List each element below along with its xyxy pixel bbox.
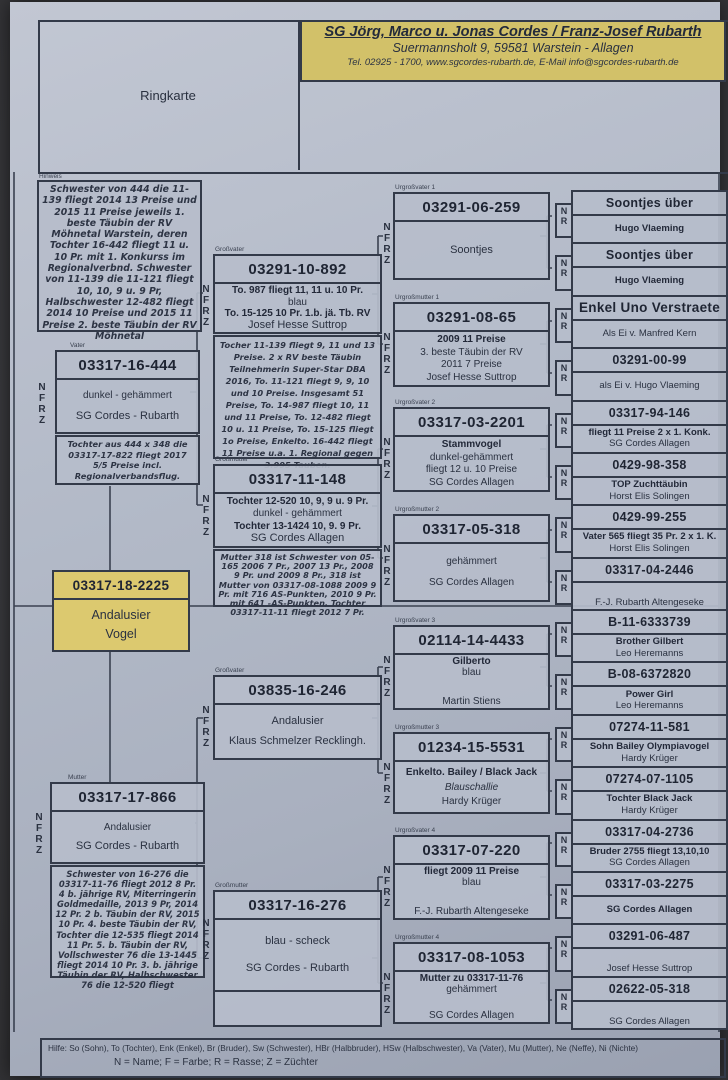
ggp6-label: Urgroßmutter 3	[395, 724, 439, 731]
nr-letters: N R	[555, 884, 571, 919]
ggp5-nfrz-letters: N F R Z	[381, 655, 393, 706]
ggg-entry-4: N R 03291-00-99 als Ei v. Hugo Vlaeming	[555, 347, 728, 399]
ggg-title: Enkel Uno Verstraete	[573, 297, 726, 321]
ggg-row: Hugo Vlaeming	[615, 224, 684, 235]
detail-row: SG Cordes - Rubarth	[246, 963, 349, 974]
vater-nfrz-letters: N F R Z	[36, 382, 48, 432]
grandfather1-note: Tocher 11-139 fliegt 9, 11 und 13 Preise…	[213, 335, 382, 459]
ggp5-ring-number: 02114-14-4433	[395, 627, 548, 655]
ggg-row: Brother Gilbert	[616, 637, 684, 648]
detail-row: Martin Stiens	[442, 696, 500, 707]
ggg-entry-13: N R 03317-04-2736 Bruder 2755 fliegt 13,…	[555, 819, 728, 871]
mutter-box: 03317-17-866 Andalusier SG Cordes - Ruba…	[50, 782, 205, 864]
ggg-title: 03317-03-2275	[573, 873, 726, 897]
ggp2-ring-number: 03291-08-65	[395, 304, 548, 332]
grandfather2-label: Großvater	[215, 667, 244, 674]
detail-row: 3. beste Täubin der RV	[420, 347, 522, 358]
detail-row: 2011 7 Preise	[441, 359, 502, 370]
ggp5-label: Urgroßvater 3	[395, 617, 435, 624]
ggg-entry-15: N R 03291-06-487 Josef Hesse Suttrop	[555, 923, 728, 975]
ggg-title: 03291-06-487	[573, 925, 726, 949]
ggp1-nfrz-letters: N F R Z	[381, 222, 393, 276]
ggg-entry-11: N R 07274-11-581 Sohn Bailey Olympiavoge…	[555, 714, 728, 766]
grandmother2-nfrz-letters: N F R Z	[200, 918, 212, 970]
ggg-entry-10: N R B-08-6372820 Power Girl Leo Heremann…	[555, 661, 728, 713]
abbreviation-help: Hilfe: So (Sohn), To (Tochter), Enk (Enk…	[48, 1043, 718, 1053]
ggp7-ring-number: 03317-07-220	[395, 837, 548, 865]
ggp6-nfrz-letters: N F R Z	[381, 762, 393, 810]
nr-letters: N R	[555, 465, 571, 500]
subject-sex: Vogel	[105, 629, 136, 640]
ggp5-box: 02114-14-4433 Gilberto blau Martin Stien…	[393, 625, 550, 710]
ggp2-nfrz-letters: N F R Z	[381, 332, 393, 383]
mutter-nfrz-letters: N F R Z	[33, 812, 45, 862]
ggg-row: TOP Zuchttäubin	[611, 480, 687, 491]
nr-letters: N R	[555, 570, 571, 605]
ggg-title: Soontjes über	[573, 244, 726, 268]
nr-letters: N R	[555, 308, 571, 343]
ggp7-box: 03317-07-220 fliegt 2009 11 Preise blau …	[393, 835, 550, 920]
ggg-title: 03317-94-146	[573, 402, 726, 426]
ggg-row: Leo Heremanns	[616, 649, 684, 660]
mutter-ring-number: 03317-17-866	[52, 784, 203, 812]
ggg-row: Power Girl	[626, 690, 674, 701]
ggg-row: fliegt 11 Preise 2 x 1. Konk.	[589, 428, 711, 439]
ggg-entry-14: N R 03317-03-2275 SG Cordes Allagen	[555, 871, 728, 923]
nr-letters: N R	[555, 255, 571, 290]
grandmother2-box: 03317-16-276 blau - scheck SG Cordes - R…	[213, 890, 382, 1027]
ggg-row: Josef Hesse Suttrop	[607, 964, 693, 975]
nr-letters: N R	[555, 203, 571, 238]
ggp3-label: Urgroßvater 2	[395, 399, 435, 406]
nr-letters: N R	[555, 674, 571, 709]
grandmother2-ring-number: 03317-16-276	[215, 892, 380, 920]
grandmother1-box: 03317-11-148 Tochter 12-520 10, 9, 9 u. …	[213, 464, 382, 548]
ggp3-nfrz-letters: N F R Z	[381, 437, 393, 488]
paper-sheet: Ringkarte SG Jörg, Marco u. Jonas Cordes…	[10, 2, 720, 1076]
ggp6-box: 01234-15-5531 Enkelto. Bailey / Black Ja…	[393, 732, 550, 814]
ggg-row: Vater 565 fliegt 35 Pr. 2 x 1. K.	[583, 532, 717, 543]
ggp1-label: Urgroßvater 1	[395, 184, 435, 191]
ggg-title: 0429-98-358	[573, 454, 726, 478]
ggp1-box: 03291-06-259 Soontjes	[393, 192, 550, 280]
ggg-title: 0429-99-255	[573, 506, 726, 530]
ggg-entry-5: N R 03317-94-146 fliegt 11 Preise 2 x 1.…	[555, 400, 728, 452]
ggg-entry-16: N R 02622-05-318 SG Cordes Allagen	[555, 976, 728, 1028]
mutter-breed: Andalusier	[104, 822, 151, 833]
ggg-entry-2: N R Soontjes über Hugo Vlaeming	[555, 242, 728, 294]
ggg-row: Horst Elis Solingen	[609, 492, 689, 503]
mutter-label: Mutter	[68, 774, 86, 781]
detail-row: Soontjes	[450, 245, 493, 256]
detail-row: SG Cordes Allagen	[429, 477, 514, 488]
grandmother1-nfrz-letters: N F R Z	[200, 494, 212, 546]
ggg-title: 07274-11-581	[573, 716, 726, 740]
nr-letters: N R	[555, 989, 571, 1024]
detail-row: fliegt 2009 11 Preise	[424, 866, 519, 877]
ggp7-label: Urgroßvater 4	[395, 827, 435, 834]
vater-box: 03317-16-444 dunkel - gehämmert SG Corde…	[55, 350, 200, 434]
grandmother1-ring-number: 03317-11-148	[215, 466, 380, 494]
hinweis-note: Schwester von 444 die 11-139 fliegt 2014…	[37, 180, 202, 332]
grandfather2-nfrz-letters: N F R Z	[200, 705, 212, 758]
ggp3-box: 03317-03-2201 Stammvogel dunkel-gehämmer…	[393, 407, 550, 492]
vater-breeder: SG Cordes - Rubarth	[76, 411, 179, 422]
detail-row: To. 15-125 10 Pr. 1.b. jä. Tb. RV	[225, 308, 371, 319]
ggg-entry-8: N R 03317-04-2446 F.-J. Rubarth Altenges…	[555, 557, 728, 609]
detail-row: Hardy Krüger	[442, 796, 501, 807]
subject-box: 03317-18-2225 Andalusier Vogel	[52, 570, 190, 652]
nr-letters: N R	[555, 832, 571, 867]
ggp7-nfrz-letters: N F R Z	[381, 865, 393, 916]
nr-letters: N R	[555, 779, 571, 814]
detail-row: blau	[288, 297, 307, 308]
ggg-title: 03291-00-99	[573, 349, 726, 373]
footer-legend-box: Hilfe: So (Sohn), To (Tochter), Enk (Enk…	[40, 1038, 726, 1078]
detail-row: SG Cordes Allagen	[429, 577, 514, 588]
detail-row: gehämmert	[446, 984, 497, 995]
great-great-grandparents-column: N R Soontjes über Hugo Vlaeming N R Soon…	[555, 190, 728, 1028]
ggg-row: F.-J. Rubarth Altengeseke	[595, 598, 704, 609]
nr-letters: N R	[555, 517, 571, 552]
ggg-row: SG Cordes Allagen	[609, 1017, 690, 1028]
ggp4-box: 03317-05-318 gehämmert SG Cordes Allagen	[393, 514, 550, 602]
detail-row: Tochter 13-1424 10, 9. 9 Pr.	[234, 521, 361, 532]
empty-area	[215, 992, 380, 1025]
ggg-row: Hardy Krüger	[621, 806, 678, 817]
detail-row: dunkel-gehämmert	[430, 452, 513, 463]
ggg-row: SG Cordes Allagen	[609, 858, 690, 869]
subject-ring-number: 03317-18-2225	[54, 572, 188, 600]
nr-letters: N R	[555, 936, 571, 971]
ggg-row: Bruder 2755 fliegt 13,10,10	[590, 847, 710, 858]
ggg-title: 02622-05-318	[573, 978, 726, 1002]
ggp4-label: Urgroßmutter 2	[395, 506, 439, 513]
ggg-row: Hugo Vlaeming	[615, 276, 684, 287]
detail-row: 2009 11 Preise	[437, 334, 505, 345]
ggg-title: 03317-04-2446	[573, 559, 726, 583]
ggg-row: Horst Elis Solingen	[609, 544, 689, 555]
ggg-title: 07274-07-1105	[573, 768, 726, 792]
detail-row: blau	[462, 877, 481, 888]
ggp4-ring-number: 03317-05-318	[395, 516, 548, 544]
detail-row: Andalusier	[272, 716, 324, 727]
nr-letters: N R	[555, 622, 571, 657]
grandfather2-ring-number: 03835-16-246	[215, 677, 380, 705]
ggg-row: als Ei v. Hugo Vlaeming	[599, 381, 699, 392]
detail-row: blau - scheck	[265, 936, 330, 947]
subject-breed: Andalusier	[91, 610, 150, 621]
vater-label: Vater	[70, 342, 85, 349]
detail-row: fliegt 12 u. 10 Preise	[426, 464, 517, 475]
grandmother1-note: Mutter 318 ist Schwester von 05-165 2006…	[213, 549, 382, 607]
grandfather1-nfrz-letters: N F R Z	[200, 284, 212, 332]
detail-row: blau	[462, 667, 481, 678]
ggg-title: 03317-04-2736	[573, 821, 726, 845]
ggg-entry-12: N R 07274-07-1105 Tochter Black Jack Har…	[555, 766, 728, 818]
detail-row: SG Cordes Allagen	[251, 533, 345, 544]
ggp8-box: 03317-08-1053 Mutter zu 03317-11-76 gehä…	[393, 942, 550, 1024]
ggg-entry-7: N R 0429-99-255 Vater 565 fliegt 35 Pr. …	[555, 504, 728, 556]
ggp8-nfrz-letters: N F R Z	[381, 972, 393, 1020]
detail-row: gehämmert	[446, 556, 497, 567]
ggp2-label: Urgroßmutter 1	[395, 294, 439, 301]
ggg-row: Sohn Bailey Olympiavogel	[590, 742, 709, 753]
vater-note: Tochter aus 444 x 348 die 03317-17-822 f…	[55, 435, 200, 485]
grandfather1-ring-number: 03291-10-892	[215, 256, 380, 284]
nr-letters: N R	[555, 413, 571, 448]
vater-color: dunkel - gehämmert	[83, 390, 172, 401]
detail-row: Tochter 12-520 10, 9, 9 u. 9 Pr.	[227, 496, 369, 507]
mutter-breeder: SG Cordes - Rubarth	[76, 841, 179, 852]
ggp6-ring-number: 01234-15-5531	[395, 734, 548, 762]
ggp8-ring-number: 03317-08-1053	[395, 944, 548, 972]
ggp4-nfrz-letters: N F R Z	[381, 544, 393, 598]
detail-row: Blauschallie	[445, 782, 498, 793]
ggp1-ring-number: 03291-06-259	[395, 194, 548, 222]
mutter-note: Schwester von 16-276 die 03317-11-76 fli…	[50, 865, 205, 978]
ggg-entry-1: N R Soontjes über Hugo Vlaeming	[555, 190, 728, 242]
nr-letters: N R	[555, 360, 571, 395]
ggg-title: B-11-6333739	[573, 611, 726, 635]
detail-row: Josef Hesse Suttrop	[426, 372, 516, 383]
vater-ring-number: 03317-16-444	[57, 352, 198, 380]
ggp3-ring-number: 03317-03-2201	[395, 409, 548, 437]
detail-row: Enkelto. Bailey / Black Jack	[406, 767, 537, 778]
ggg-row: Leo Heremanns	[616, 701, 684, 712]
nr-letters: N R	[555, 727, 571, 762]
ggp8-label: Urgroßmutter 4	[395, 934, 439, 941]
detail-row: Gilberto	[452, 656, 490, 667]
detail-row: Josef Hesse Suttrop	[248, 320, 347, 331]
detail-row: F.-J. Rubarth Altengeseke	[414, 906, 529, 917]
ggg-row: Tochter Black Jack	[607, 794, 693, 805]
ggg-row: Hardy Krüger	[621, 754, 678, 765]
ggg-row: Als Ei v. Manfred Kern	[603, 329, 697, 340]
ggg-entry-6: N R 0429-98-358 TOP Zuchttäubin Horst El…	[555, 452, 728, 504]
ggg-row: SG Cordes Allagen	[609, 439, 690, 450]
ggg-entry-3: N R Enkel Uno Verstraete Als Ei v. Manfr…	[555, 295, 728, 347]
hinweis-label: Hinweis	[39, 173, 62, 180]
grandmother1-label: Großmutter	[215, 456, 248, 463]
grandfather1-label: Großvater	[215, 246, 244, 253]
grandmother2-label: Großmutter	[215, 882, 248, 889]
detail-row: SG Cordes Allagen	[429, 1010, 514, 1021]
ggg-entry-9: N R B-11-6333739 Brother Gilbert Leo Her…	[555, 609, 728, 661]
grandfather1-box: 03291-10-892 To. 987 fliegt 11, 11 u. 10…	[213, 254, 382, 334]
pedigree-card-photo: Ringkarte SG Jörg, Marco u. Jonas Cordes…	[0, 0, 728, 1080]
grandfather2-box: 03835-16-246 Andalusier Klaus Schmelzer …	[213, 675, 382, 760]
detail-row: To. 987 fliegt 11, 11 u. 10 Pr.	[232, 285, 363, 296]
detail-row: Mutter zu 03317-11-76	[420, 973, 523, 984]
ggg-title: B-08-6372820	[573, 663, 726, 687]
nfrz-legend: N = Name; F = Farbe; R = Rasse; Z = Züch…	[114, 1057, 718, 1068]
ggp2-box: 03291-08-65 2009 11 Preise 3. beste Täub…	[393, 302, 550, 387]
detail-row: dunkel - gehämmert	[253, 508, 342, 519]
detail-row: Klaus Schmelzer Recklingh.	[229, 736, 366, 747]
detail-row: Stammvogel	[442, 439, 501, 450]
ggg-title: Soontjes über	[573, 192, 726, 216]
ggg-row: SG Cordes Allagen	[607, 905, 693, 916]
